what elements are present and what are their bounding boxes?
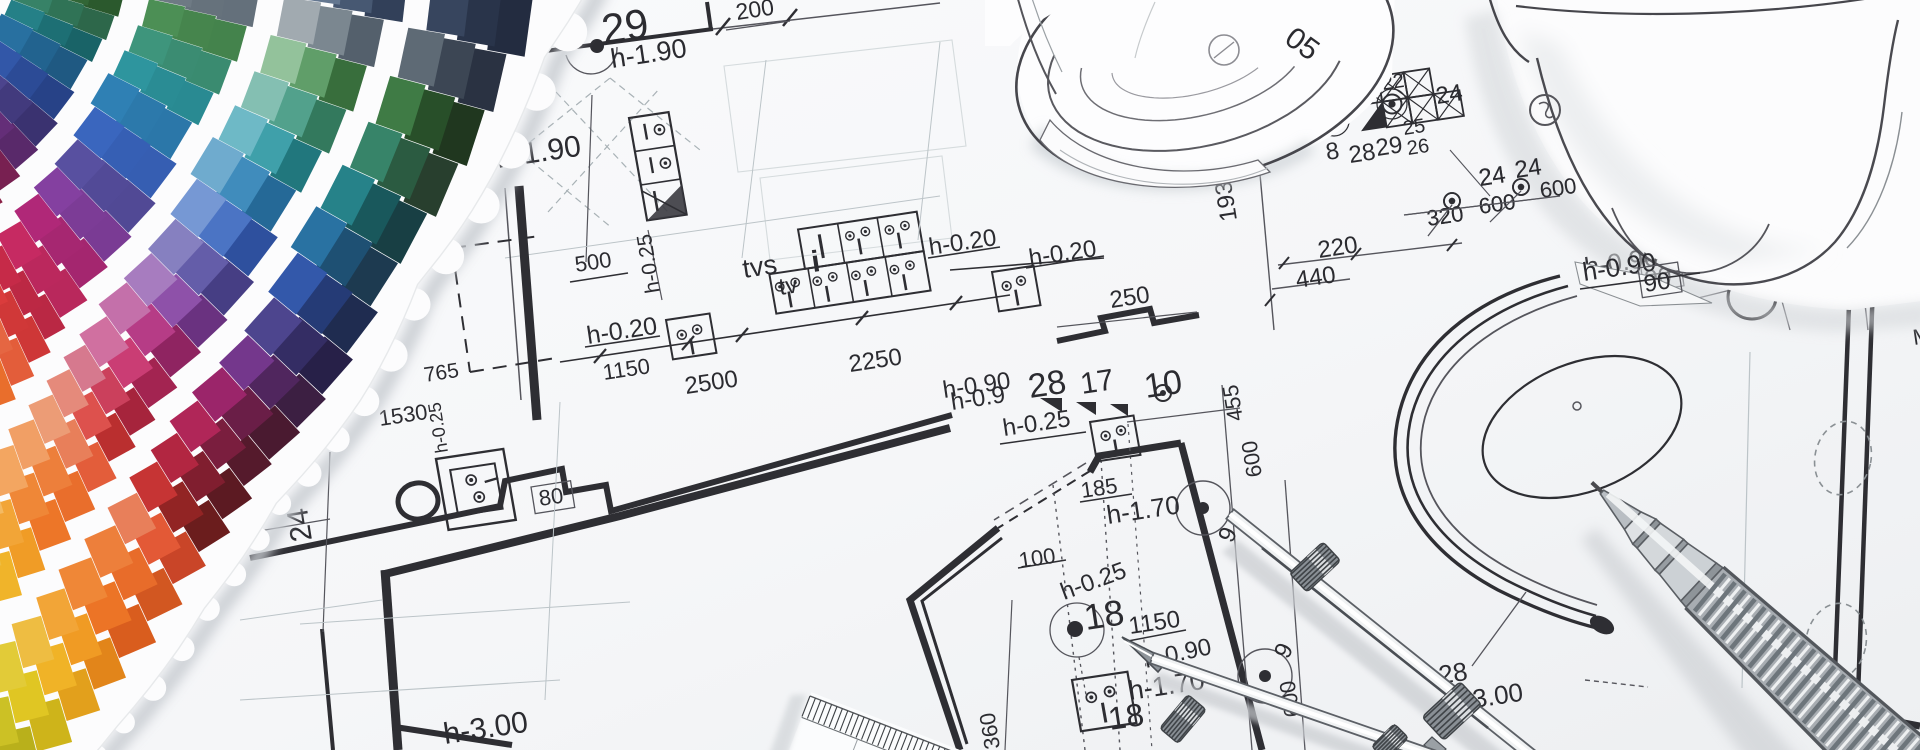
svg-text:80: 80 [537,483,565,511]
svg-text:tvs: tvs [740,249,779,284]
svg-text:24: 24 [1477,161,1507,192]
svg-text:17: 17 [1078,363,1116,401]
svg-text:29: 29 [1374,131,1404,162]
svg-text:26: 26 [1405,135,1430,160]
svg-text:24: 24 [1434,79,1464,110]
svg-text:28: 28 [1347,138,1377,169]
svg-text:tv: tv [777,271,799,300]
svg-text:18: 18 [1106,696,1147,737]
svg-text:18: 18 [1081,591,1127,637]
